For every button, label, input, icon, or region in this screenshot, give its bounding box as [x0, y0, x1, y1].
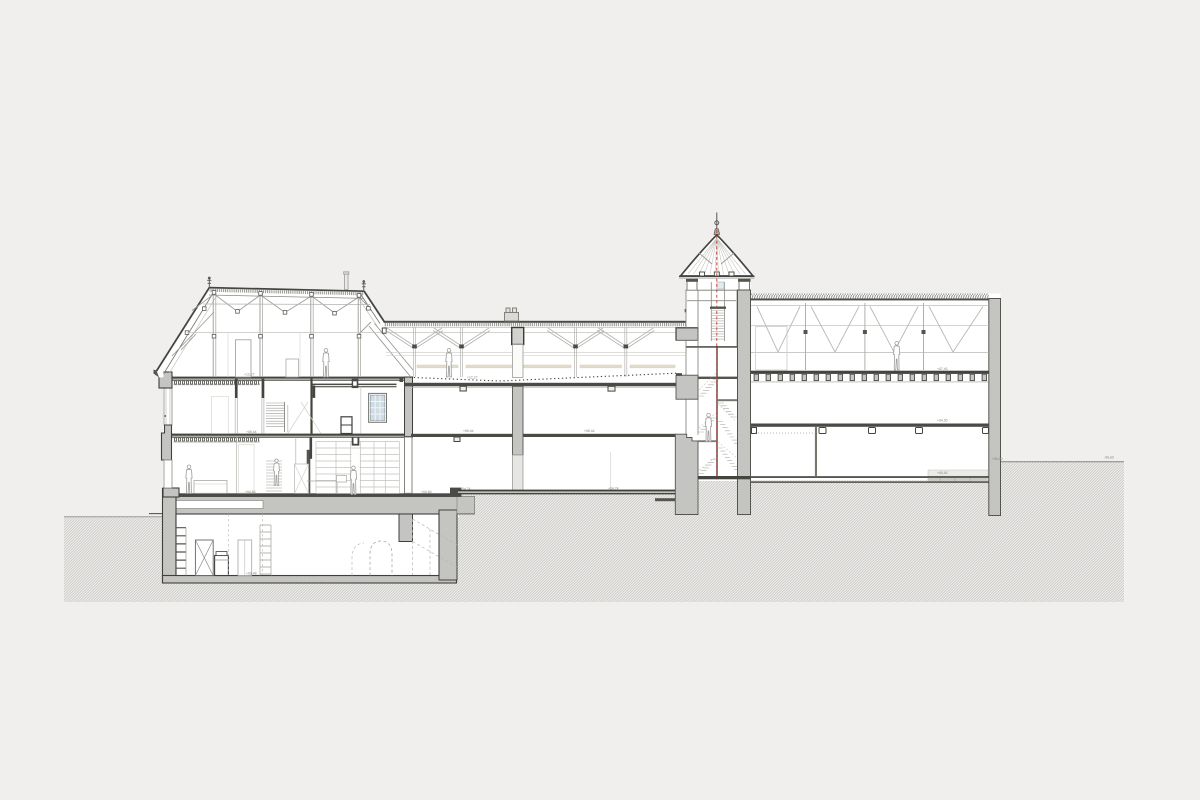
- svg-text:+04,74: +04,74: [460, 487, 471, 491]
- svg-text:+04,60: +04,60: [245, 490, 256, 494]
- svg-text:+08,44: +08,44: [463, 429, 474, 433]
- svg-text:-00,60: -00,60: [1104, 456, 1114, 460]
- svg-text:+08,44: +08,44: [246, 430, 257, 434]
- svg-text:+08,44: +08,44: [584, 429, 595, 433]
- svg-text:+12,27: +12,27: [467, 376, 478, 380]
- svg-text:+04,30: +04,30: [937, 419, 948, 423]
- svg-text:+00,95: +00,95: [937, 471, 948, 475]
- svg-text:+00,00: +00,00: [992, 457, 1003, 461]
- svg-text:+04,60: +04,60: [421, 490, 432, 494]
- svg-text:+05,48: +05,48: [246, 572, 257, 576]
- svg-text:+04,74: +04,74: [608, 486, 619, 490]
- svg-text:+12,27: +12,27: [244, 373, 255, 377]
- svg-text:+07,45: +07,45: [937, 367, 948, 371]
